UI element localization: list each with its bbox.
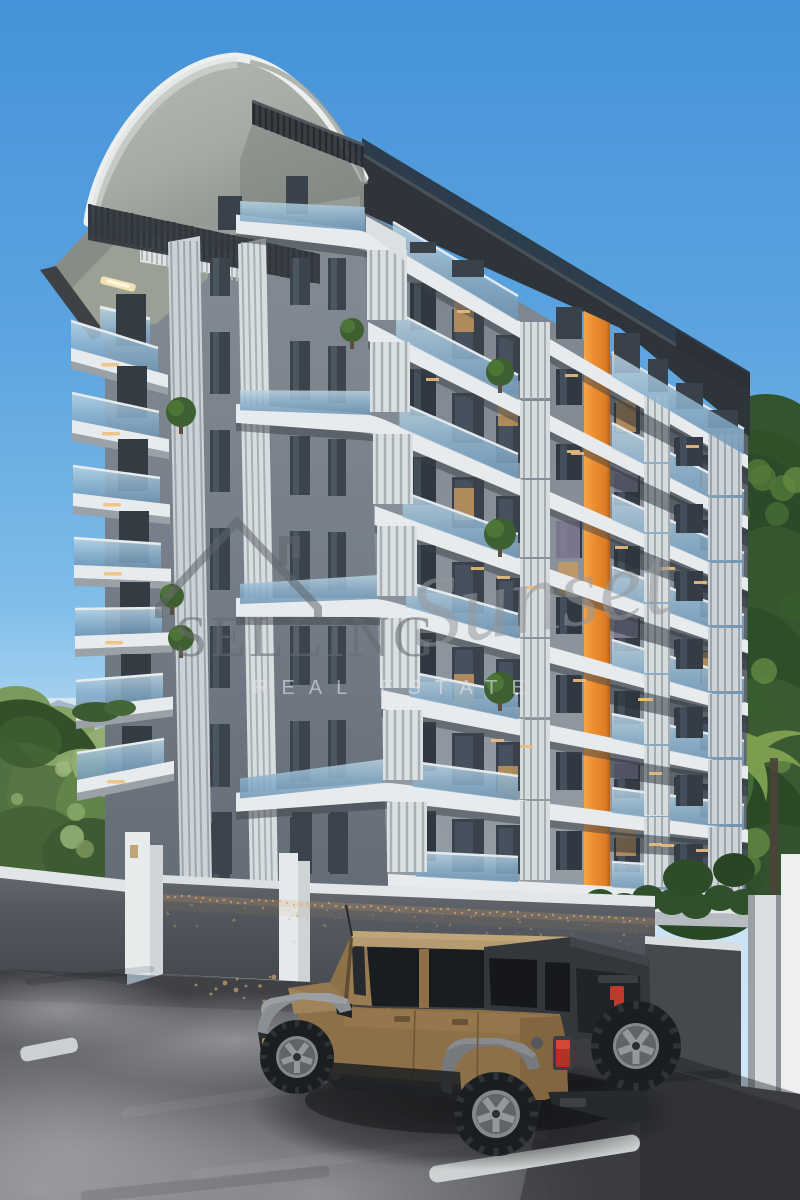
svg-text:SELLING: SELLING xyxy=(175,604,438,669)
svg-text:REAL ESTATE: REAL ESTATE xyxy=(253,677,539,699)
